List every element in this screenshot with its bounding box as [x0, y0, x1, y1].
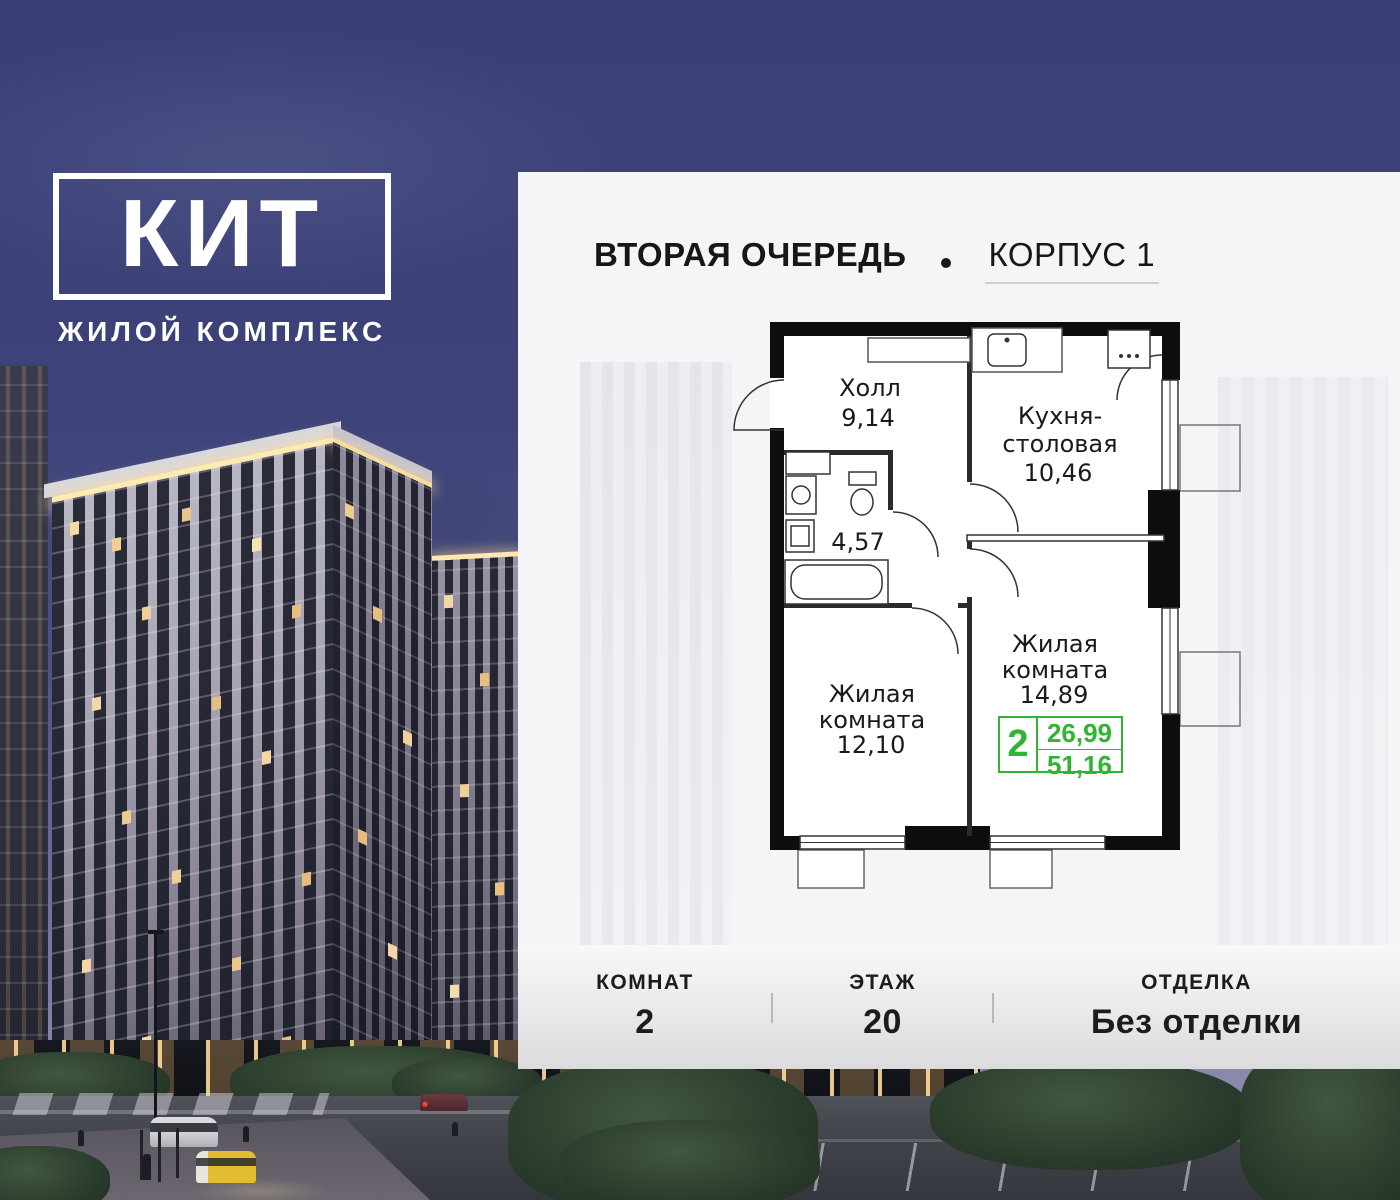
street-lamp-pole: [154, 933, 157, 1127]
flyer: ВТОРАЯ ОЧЕРЕДЬ КОРПУС 1: [0, 0, 1400, 1200]
brand-logo: КИТ ЖИЛОЙ КОМПЛЕКС: [53, 173, 391, 348]
logo-subtitle: ЖИЛОЙ КОМПЛЕКС: [53, 316, 391, 348]
room-name: Жилая: [829, 680, 915, 708]
dot-separator-icon: [941, 258, 951, 268]
tree-foreground: [930, 1060, 1250, 1170]
street-lamp-head: [148, 930, 164, 934]
pedestrian: [143, 1154, 151, 1180]
crosswalk-markings: [12, 1093, 329, 1115]
areas: 26,99 51,16: [1038, 718, 1121, 771]
room-area: 10,46: [1024, 459, 1093, 487]
room-name: столовая: [1002, 430, 1117, 458]
detail-label: ОТДЕЛКА: [993, 971, 1400, 995]
total-area: 51,16: [1038, 750, 1121, 781]
balcony: [990, 850, 1052, 888]
phase-title: ВТОРАЯ ОЧЕРЕДЬ: [594, 236, 907, 274]
apartment-tower-far: [430, 551, 522, 1100]
floor-plan: Холл 9,14 Кухня- столовая 10,46 4,57 Жил…: [700, 300, 1260, 910]
tower-facade: [430, 556, 522, 1100]
logo-frame: КИТ: [53, 173, 391, 300]
detail-floor: ЭТАЖ 20: [772, 971, 993, 1042]
room-name: комната: [1002, 656, 1108, 684]
pedestrian: [452, 1122, 458, 1136]
room-name: комната: [819, 706, 925, 734]
room-area: 12,10: [837, 731, 906, 759]
ac-basket: [1180, 652, 1240, 726]
detail-label: ЭТАЖ: [772, 971, 993, 995]
logo-text: КИТ: [120, 186, 324, 288]
pedestrian: [78, 1130, 84, 1146]
info-panel: ВТОРАЯ ОЧЕРЕДЬ КОРПУС 1: [518, 172, 1400, 1069]
panel-header: ВТОРАЯ ОЧЕРЕДЬ КОРПУС 1: [594, 236, 1159, 284]
kitchen-wall: [967, 535, 1164, 541]
room-name: Холл: [839, 374, 901, 402]
detail-label: КОМНАТ: [518, 971, 772, 995]
ac-basket: [1180, 425, 1240, 491]
balcony: [798, 850, 864, 888]
detail-rooms: КОМНАТ 2: [518, 971, 772, 1042]
living-area: 26,99: [1038, 718, 1121, 750]
details-bar: КОМНАТ 2 ЭТАЖ 20 ОТДЕЛКА Без отделки: [518, 945, 1400, 1069]
tree-trunks: [140, 1130, 143, 1180]
kitchen-fixtures: [972, 328, 1150, 372]
building-link[interactable]: КОРПУС 1: [985, 236, 1160, 284]
area-summary-badge: 2 26,99 51,16: [998, 716, 1123, 773]
room-name: Жилая: [1012, 630, 1098, 658]
detail-value: 20: [772, 1003, 993, 1042]
yellow-taxi: [196, 1151, 256, 1183]
pedestrian: [243, 1126, 249, 1142]
apartment-tower-side: [333, 437, 432, 1141]
detail-finishing: ОТДЕЛКА Без отделки: [993, 971, 1400, 1042]
rooms-count: 2: [1000, 718, 1038, 771]
detail-value: Без отделки: [993, 1003, 1400, 1042]
room-bathroom: 4,57: [831, 528, 884, 556]
room-name: Кухня-: [1018, 402, 1102, 430]
room-area: 4,57: [831, 528, 884, 556]
room-area: 14,89: [1020, 681, 1089, 709]
background-building: [0, 366, 48, 1088]
parked-car: [420, 1094, 468, 1111]
white-suv: [150, 1117, 218, 1147]
lit-windows: [52, 495, 61, 510]
room-area: 9,14: [841, 404, 894, 432]
tree-foreground: [560, 1120, 820, 1200]
tower-facade: [333, 442, 432, 1141]
detail-value: 2: [518, 1003, 772, 1042]
wardrobe: [868, 338, 970, 362]
